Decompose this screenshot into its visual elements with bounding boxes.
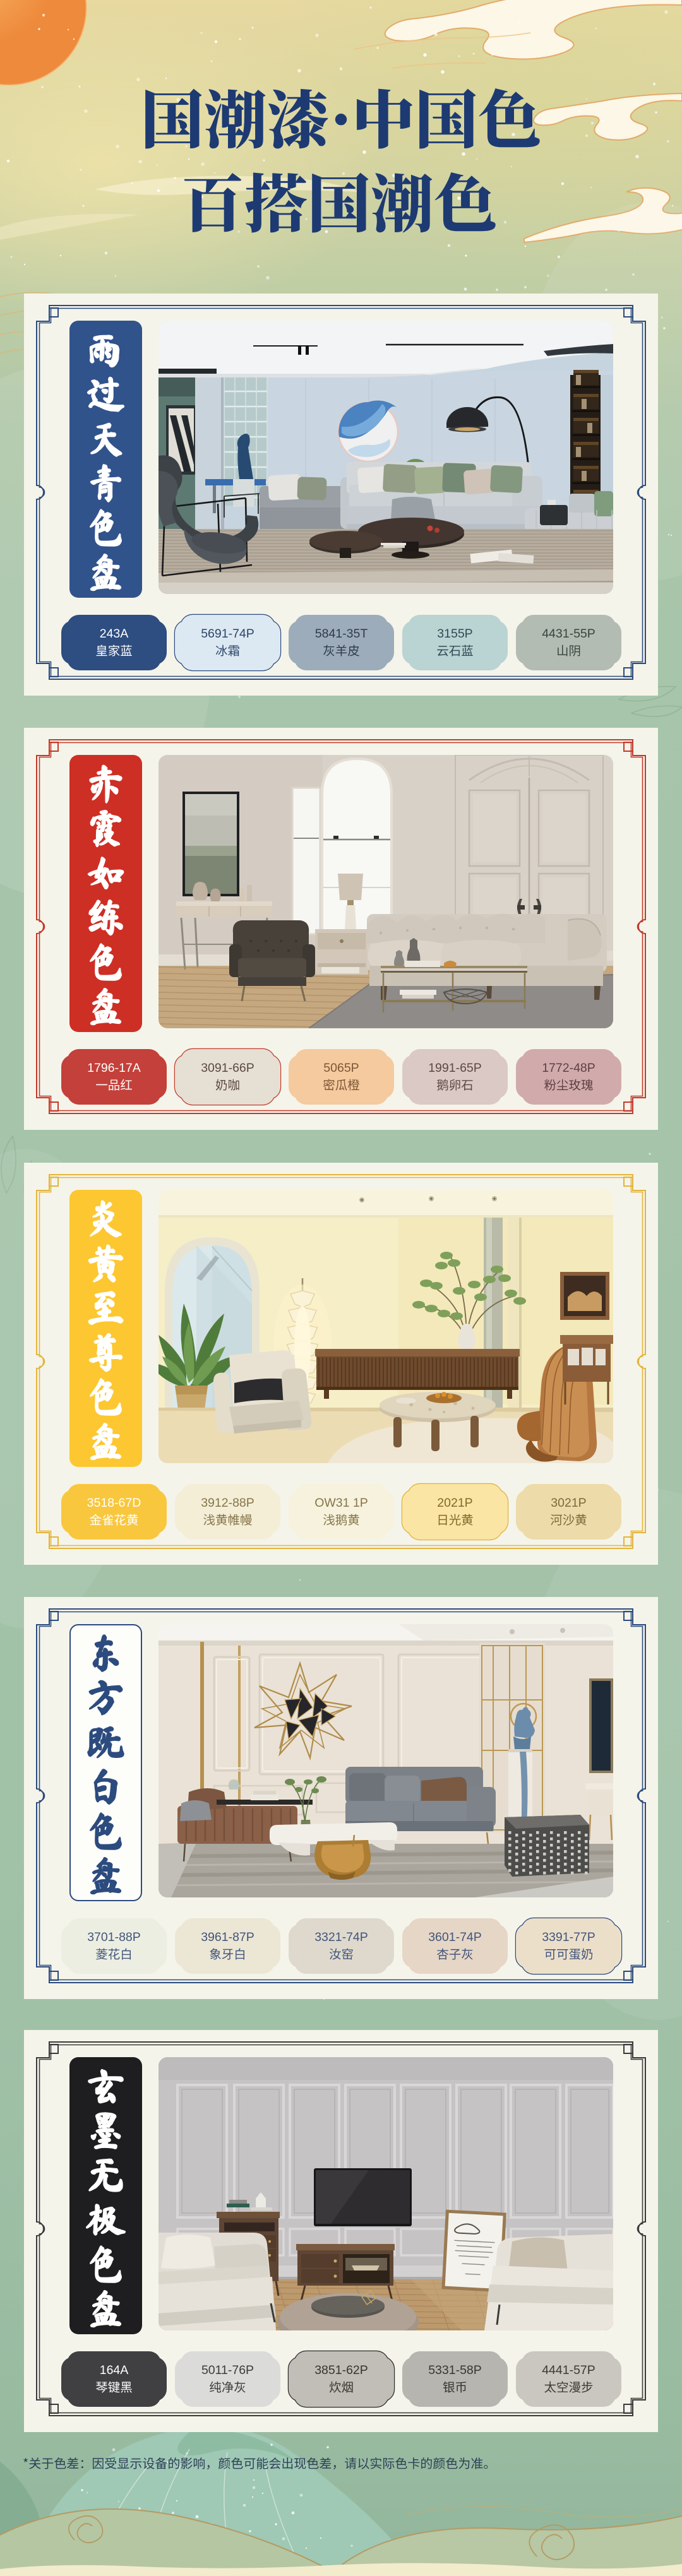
svg-text:3155P: 3155P <box>437 627 472 641</box>
svg-text:3961-87P: 3961-87P <box>201 1930 254 1944</box>
svg-text:3518-67D: 3518-67D <box>87 1496 141 1510</box>
svg-text:5065P: 5065P <box>323 1061 359 1075</box>
svg-text:OW31 1P: OW31 1P <box>314 1496 368 1510</box>
svg-text:1796-17A: 1796-17A <box>87 1061 141 1075</box>
svg-text:2021P: 2021P <box>437 1496 472 1510</box>
svg-text:1991-65P: 1991-65P <box>428 1061 482 1075</box>
svg-text:3701-88P: 3701-88P <box>87 1930 141 1944</box>
svg-text:3391-77P: 3391-77P <box>542 1930 595 1944</box>
svg-text:3851-62P: 3851-62P <box>314 2363 368 2377</box>
svg-text:164A: 164A <box>100 2363 129 2377</box>
svg-text:5331-58P: 5331-58P <box>428 2363 482 2377</box>
svg-text:3321-74P: 3321-74P <box>314 1930 368 1944</box>
svg-text:4441-57P: 4441-57P <box>542 2363 595 2377</box>
svg-text:5691-74P: 5691-74P <box>201 627 254 641</box>
svg-text:3091-66P: 3091-66P <box>201 1061 254 1075</box>
svg-text:3912-88P: 3912-88P <box>201 1496 254 1510</box>
svg-text:5011-76P: 5011-76P <box>201 2363 254 2377</box>
svg-text:1772-48P: 1772-48P <box>542 1061 595 1075</box>
svg-text:243A: 243A <box>100 627 129 641</box>
svg-text:4431-55P: 4431-55P <box>542 627 595 641</box>
svg-text:5841-35T: 5841-35T <box>315 627 368 641</box>
svg-text:3601-74P: 3601-74P <box>428 1930 482 1944</box>
svg-text:3021P: 3021P <box>551 1496 586 1510</box>
